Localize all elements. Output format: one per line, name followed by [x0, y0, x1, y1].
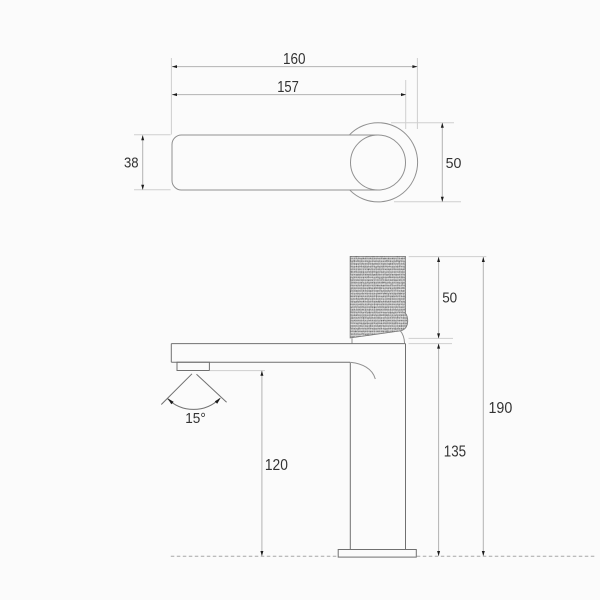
svg-text:38: 38 [124, 156, 139, 172]
svg-text:120: 120 [265, 457, 288, 474]
svg-text:50: 50 [446, 156, 462, 172]
svg-text:190: 190 [489, 400, 513, 417]
svg-text:135: 135 [444, 444, 466, 461]
svg-text:50: 50 [442, 290, 457, 306]
svg-text:15°: 15° [185, 411, 206, 427]
svg-text:160: 160 [283, 51, 306, 68]
svg-text:157: 157 [277, 79, 299, 96]
